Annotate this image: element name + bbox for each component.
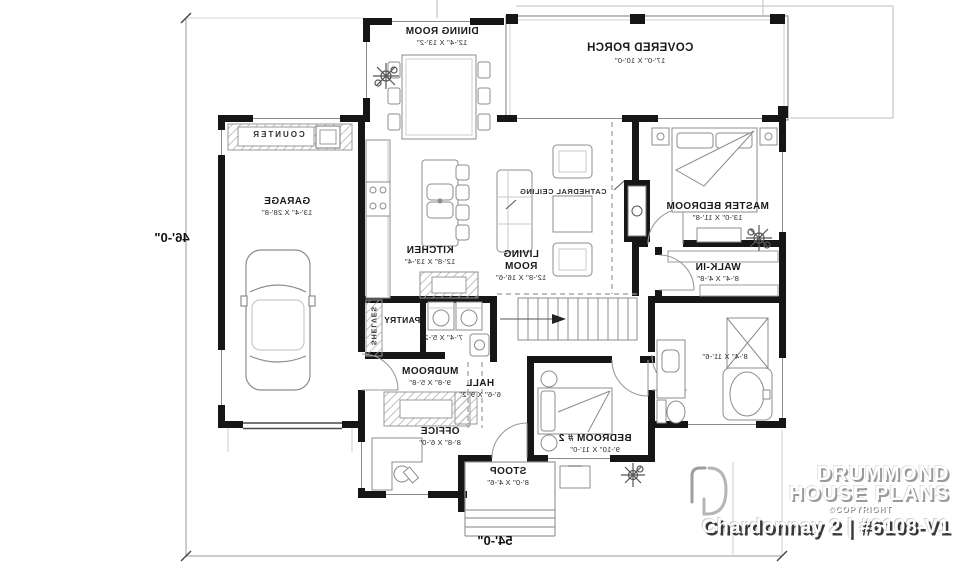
room-label-porch: COVERED PORCH 17'-0" X 10'-0" xyxy=(560,42,720,65)
room-name: MASTER BEDROOM xyxy=(645,201,790,213)
room-dims: 8'-4" X 11'-6" xyxy=(682,352,768,361)
room-dims: 12'-4" X 13'-2" xyxy=(392,38,492,47)
kitchen-fixtures xyxy=(366,140,478,298)
room-name: LIVING ROOM xyxy=(488,249,554,273)
room-name: BEDROOM # 2 xyxy=(534,433,656,445)
room-dims: 17'-0" X 10'-0" xyxy=(560,56,720,65)
room-label-hall: HALL 6'-6" X 9'-2" xyxy=(442,378,518,399)
overall-width-dimension: 54'-0" xyxy=(455,533,535,548)
pantry-laundry-fixtures xyxy=(366,300,489,356)
cathedral-ceiling-annotation: CATHEDRAL CEILING xyxy=(510,187,616,196)
room-name: OFFICE xyxy=(394,426,486,438)
room-name: COVERED PORCH xyxy=(560,42,720,56)
brand-watermark: DRUMMOND HOUSE PLANS ©COPYRIGHT Chardonn… xyxy=(680,462,950,539)
room-label-walkin: WALK-IN 8'-4" X 4'-8" xyxy=(672,262,764,283)
room-dims: 7'-4" X 5'-2" xyxy=(412,333,472,342)
room-label-living: LIVING ROOM 12'-8" X 16'-6" xyxy=(488,249,554,282)
room-label-stoop: STOOP 8'-0" X 4'-6" xyxy=(462,466,554,487)
dining-furniture xyxy=(388,55,490,139)
room-label-bathroom: 8'-4" X 11'-6" xyxy=(682,352,768,361)
bathroom-fixtures xyxy=(657,318,772,423)
room-label-master-bedroom: MASTER BEDROOM 13'-0" X 11'-8" xyxy=(645,201,790,222)
room-dims: 12'-8" X 16'-6" xyxy=(488,273,554,282)
room-label-garage: GARAGE 13'-4" X 28'-8" xyxy=(235,196,339,217)
garage-door xyxy=(228,423,352,452)
room-dims: 13'-0" X 11'-8" xyxy=(645,213,790,222)
room-label-bedroom2: BEDROOM # 2 9'-10" X 11'-0" xyxy=(534,433,656,454)
room-label-office: OFFICE 8'-8" X 6'-0" xyxy=(394,426,486,447)
room-name: STOOP xyxy=(462,466,554,478)
room-dims: 8'-0" X 4'-6" xyxy=(462,478,554,487)
car xyxy=(241,250,315,390)
room-dims: 6'-6" X 9'-2" xyxy=(442,390,518,399)
room-label-kitchen: KITCHEN 12'-8" X 13'-4" xyxy=(378,245,482,266)
covered-porch-structure xyxy=(506,14,788,120)
overall-height-dimension: 46'-0" xyxy=(142,230,202,245)
room-name: DINING ROOM xyxy=(392,26,492,38)
room-dims: 12'-8" X 13'-4" xyxy=(378,257,482,266)
stairs xyxy=(500,298,637,340)
brand-name-line2: HOUSE PLANS xyxy=(789,484,950,504)
room-label-pantry: PANTRY xyxy=(370,315,434,325)
room-name: MUDROOM xyxy=(378,366,482,378)
room-label-dining: DINING ROOM 12'-4" X 13'-2" xyxy=(392,26,492,47)
room-name: PANTRY xyxy=(370,315,434,325)
master-bedroom-furniture xyxy=(652,128,777,242)
plan-title: Chardonnay 2 | #6108-V1 xyxy=(680,516,950,539)
shelves-annotation: SHELVES xyxy=(370,301,377,351)
room-name: GARAGE xyxy=(235,196,339,208)
room-name: WALK-IN xyxy=(672,262,764,274)
room-dims: 9'-10" X 11'-0" xyxy=(534,445,656,454)
room-name: KITCHEN xyxy=(378,245,482,257)
drummond-logo-icon xyxy=(680,462,730,516)
floor-plan-canvas: DINING ROOM 12'-4" X 13'-2" COVERED PORC… xyxy=(0,0,960,569)
room-dims: 8'-4" X 4'-8" xyxy=(672,274,764,283)
room-name: HALL xyxy=(442,378,518,390)
room-dims-pantry: 7'-4" X 5'-2" xyxy=(412,333,472,342)
counter-annotation: COUNTER xyxy=(242,130,314,139)
brand-name-line1: DRUMMOND xyxy=(789,464,950,484)
room-dims: 8'-8" X 6'-0" xyxy=(394,438,486,447)
room-dims: 13'-4" X 28'-8" xyxy=(235,208,339,217)
